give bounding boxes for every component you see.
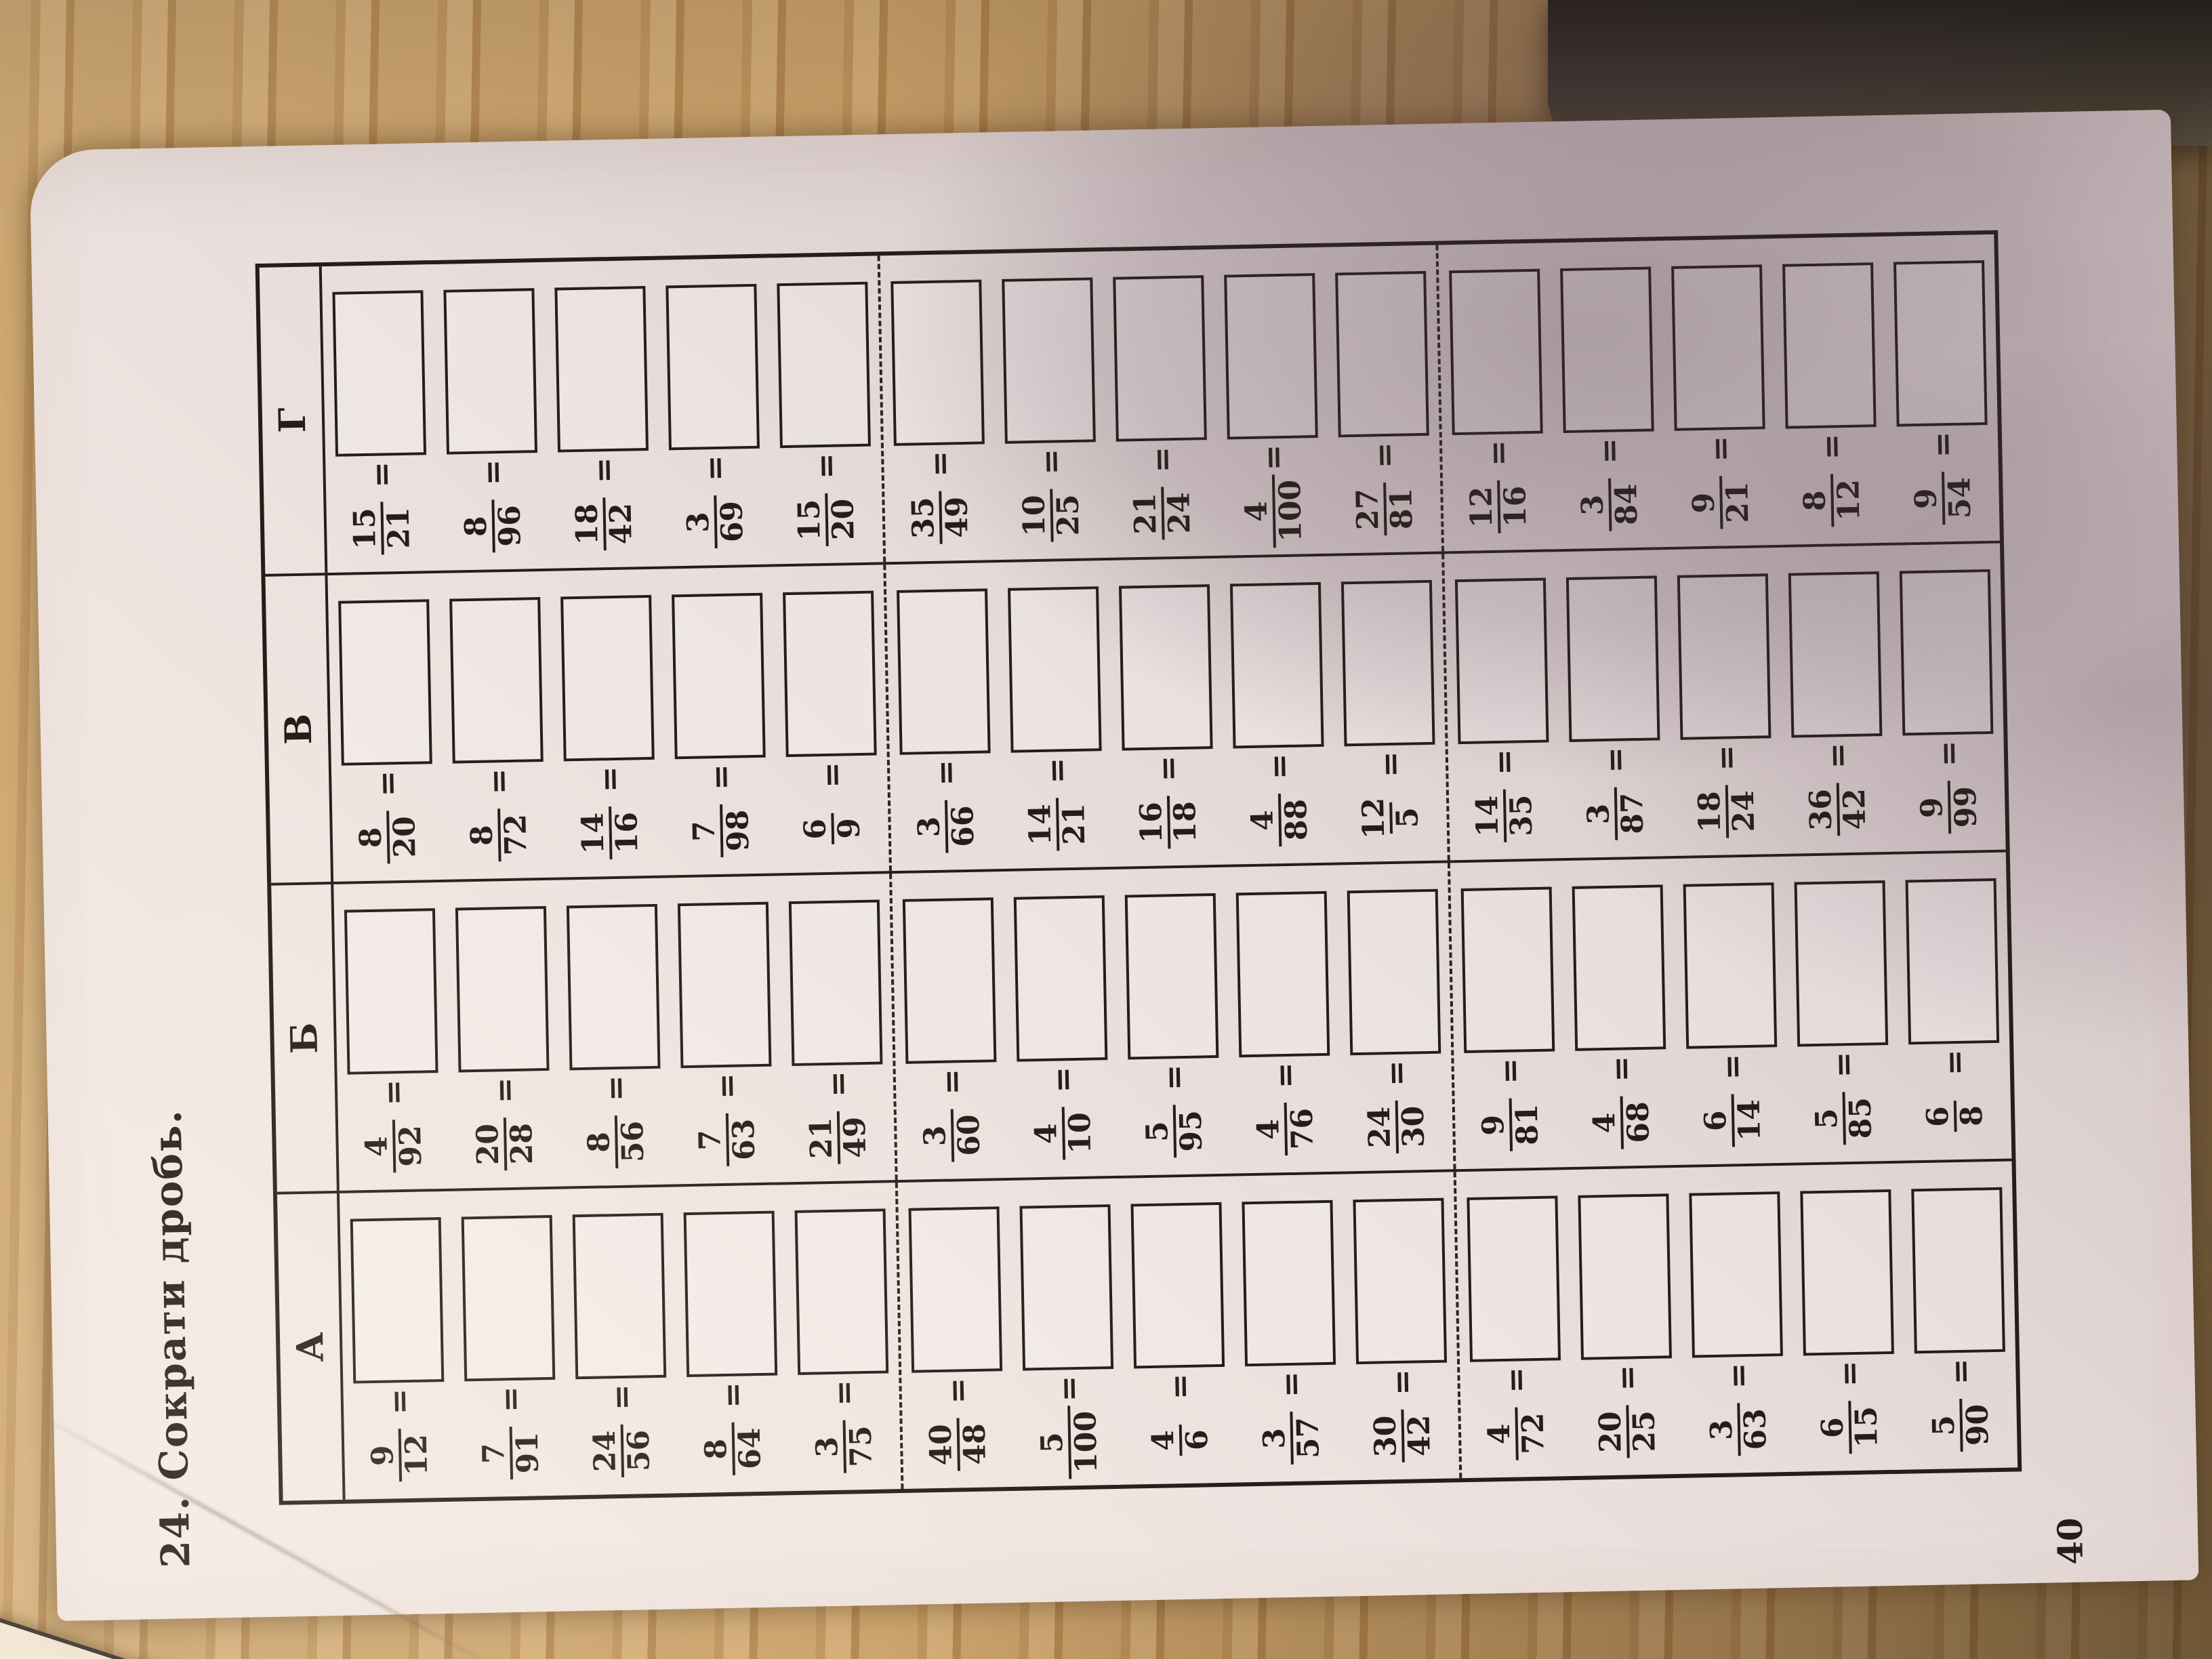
exercise-cell: 1216=: [1438, 243, 1555, 551]
fraction: 476: [1252, 1092, 1319, 1166]
fraction-numerator: 3: [914, 811, 945, 843]
equals-sign: =: [1366, 442, 1403, 469]
exercise-group: 3549=1025=2124=4100=2781=: [880, 245, 1445, 562]
fraction-denominator: 81: [1383, 483, 1418, 535]
exercise-cell: 4100=: [1213, 247, 1330, 556]
answer-box: [890, 279, 985, 446]
answer-box: [1224, 273, 1318, 440]
fraction-numerator: 16: [1136, 796, 1168, 849]
answer-box: [1461, 886, 1555, 1053]
fraction: 2149: [805, 1101, 872, 1175]
fraction-numerator: 6: [800, 813, 832, 846]
answer-box: [554, 286, 649, 453]
equals-sign: =: [1819, 742, 1856, 769]
fraction: 2456: [589, 1414, 655, 1488]
fraction: 864: [700, 1412, 766, 1486]
fraction-denominator: 48: [957, 1418, 992, 1471]
exercise-cell: 387=: [1555, 550, 1673, 858]
equals-sign: =: [1479, 440, 1517, 467]
answer-box: [1689, 1191, 1783, 1358]
equals-sign: =: [1050, 1375, 1087, 1402]
fraction-denominator: 16: [609, 806, 644, 859]
exercise-cell: 798=: [661, 567, 778, 875]
fraction-numerator: 20: [472, 1118, 505, 1171]
fraction-denominator: 56: [621, 1424, 656, 1477]
exercise-cell: 615=: [1790, 1164, 1907, 1472]
variant-column-Г: Г1521=896=1842=369=1520=3549=1025=2124=4…: [260, 234, 2000, 574]
fraction: 791: [478, 1416, 544, 1490]
exercise-group: 366=1421=1618=488=125=: [886, 554, 1450, 871]
exercise-cell: 357=: [1231, 1174, 1349, 1482]
equals-sign: =: [1935, 1049, 1973, 1076]
fraction-numerator: 9: [1910, 483, 1942, 515]
fraction-numerator: 9: [1917, 792, 1948, 824]
equals-sign: =: [1497, 1367, 1534, 1394]
fraction-denominator: 72: [1515, 1407, 1550, 1460]
equals-sign: =: [1372, 751, 1409, 778]
fraction-denominator: 92: [392, 1120, 428, 1172]
fraction: 3549: [907, 480, 974, 555]
fraction-denominator: 35: [1503, 789, 1538, 842]
equals-sign: =: [375, 1079, 412, 1106]
exercise-cell: 468=: [1561, 859, 1679, 1167]
exercise-cell: 896=: [433, 262, 550, 571]
fraction-numerator: 21: [806, 1111, 838, 1164]
exercise-cell: 2430=: [1336, 863, 1454, 1171]
fraction-numerator: 18: [1694, 785, 1727, 838]
exercise-cell: 872=: [438, 571, 556, 880]
exercise-cell: 363=: [1679, 1166, 1796, 1474]
fraction: 5100: [1036, 1405, 1103, 1479]
exercise-group: 981=468=614=585=68=: [1450, 853, 2012, 1170]
fraction-numerator: 4: [1241, 495, 1273, 528]
exercise-cell: 2149=: [778, 874, 895, 1182]
fraction-numerator: 5: [1142, 1115, 1174, 1148]
fraction-denominator: 20: [386, 811, 422, 863]
exercise-group: 360=410=595=476=2430=: [892, 863, 1456, 1180]
answer-box: [1125, 893, 1219, 1060]
fraction-numerator: 15: [349, 502, 382, 555]
exercise-cell: 3642=: [1778, 546, 1895, 854]
fraction-numerator: 7: [478, 1437, 510, 1470]
answer-box: [1467, 1195, 1561, 1362]
exercise-group: 1435=387=1824=3642=999=: [1444, 544, 2006, 861]
answer-box: [1335, 271, 1429, 438]
fraction: 1521: [349, 491, 415, 566]
equals-sign: =: [1044, 1066, 1082, 1093]
exercise-cell: 2025=: [1568, 1168, 1685, 1476]
answer-box: [1341, 580, 1435, 747]
exercise-cell: 2028=: [445, 880, 562, 1189]
exercise-cell: 3549=: [880, 253, 998, 562]
fraction-denominator: 63: [1737, 1403, 1772, 1456]
exercise-cell: 68=: [1895, 853, 2012, 1161]
exercise-cell: 2781=: [1324, 245, 1441, 554]
fraction: 387: [1582, 777, 1649, 851]
equals-sign: =: [486, 1077, 523, 1104]
fraction-denominator: 49: [837, 1111, 872, 1164]
fraction-denominator: 24: [1161, 487, 1196, 539]
fraction-denominator: 12: [1830, 474, 1866, 527]
answer-box: [777, 282, 871, 449]
fraction-denominator: 75: [843, 1420, 878, 1473]
fraction-denominator: 56: [615, 1115, 650, 1168]
fraction-denominator: 54: [1942, 472, 1977, 525]
fraction-numerator: 7: [689, 815, 720, 848]
equals-sign: =: [1143, 446, 1181, 473]
answer-box: [1119, 584, 1213, 751]
exercise-group: 4048=5100=46=357=3042=: [898, 1172, 1462, 1489]
photo-scene: з 24. Сократи дробь. А912=791=2456=864=3…: [0, 0, 2212, 1659]
equals-sign: =: [1155, 1064, 1193, 1091]
answer-box: [338, 599, 432, 766]
fraction: 2430: [1364, 1090, 1430, 1164]
exercise-cell: 1520=: [766, 255, 884, 564]
fraction: 488: [1246, 783, 1313, 857]
fraction-numerator: 3: [1583, 798, 1615, 830]
fraction-denominator: 15: [1848, 1401, 1883, 1454]
exercise-group: 472=2025=363=615=590=: [1456, 1162, 2018, 1479]
answer-box: [795, 1208, 889, 1375]
fraction-denominator: 6: [1179, 1424, 1214, 1456]
fraction-numerator: 5: [1037, 1427, 1069, 1459]
fraction: 1216: [1466, 470, 1532, 544]
fraction-denominator: 63: [726, 1113, 761, 1166]
answer-box: [1788, 571, 1883, 738]
exercise-cell: 1521=: [322, 264, 439, 573]
fraction-denominator: 21: [1056, 798, 1091, 851]
fraction-numerator: 5: [1928, 1410, 1960, 1442]
fraction-numerator: 36: [1805, 783, 1838, 836]
fraction: 369: [682, 485, 749, 559]
answer-box: [1677, 573, 1771, 740]
answer-box: [672, 593, 766, 760]
equals-sign: =: [1272, 1371, 1309, 1398]
variant-column-Б: Б492=2028=856=763=2149=360=410=595=476=2…: [271, 850, 2011, 1192]
equals-sign: =: [1713, 1053, 1750, 1080]
fraction-numerator: 9: [1478, 1109, 1510, 1141]
fraction: 472: [1483, 1397, 1550, 1471]
exercise-table: А912=791=2456=864=375=4048=5100=46=357=3…: [255, 230, 2022, 1505]
fraction-denominator: 20: [825, 493, 860, 546]
fraction: 410: [1030, 1096, 1097, 1170]
fraction-numerator: 14: [1472, 790, 1504, 842]
answer-box: [897, 588, 991, 755]
fraction-numerator: 3: [682, 506, 714, 539]
equals-sign: =: [1702, 436, 1739, 463]
equals-sign: =: [1491, 1058, 1528, 1085]
fraction-numerator: 24: [1364, 1101, 1396, 1153]
equals-sign: =: [480, 768, 517, 795]
fraction-denominator: 42: [1401, 1409, 1436, 1462]
fraction-numerator: 6: [1700, 1105, 1732, 1137]
answer-box: [1449, 269, 1543, 436]
equals-sign: =: [1942, 1358, 1979, 1385]
fraction: 2781: [1352, 472, 1418, 546]
equals-sign: =: [585, 457, 622, 484]
exercise-cell: 366=: [886, 562, 1003, 871]
exercise-cell: 46=: [1120, 1176, 1237, 1485]
answer-box: [1911, 1187, 2005, 1354]
equals-sign: =: [1377, 1060, 1414, 1087]
exercise-cell: 820=: [327, 573, 445, 882]
exercise-cell: 5100=: [1009, 1179, 1126, 1487]
fraction-denominator: 90: [1959, 1398, 1994, 1451]
fraction-denominator: 21: [1719, 476, 1755, 529]
fraction-numerator: 8: [583, 1126, 615, 1159]
exercise-title: 24. Сократи дробь.: [144, 1109, 199, 1568]
fraction: 3042: [1370, 1399, 1436, 1473]
answer-box: [462, 1215, 556, 1382]
fraction-numerator: 4: [1483, 1418, 1515, 1450]
fraction-numerator: 8: [466, 819, 498, 852]
equals-sign: =: [1924, 431, 1961, 458]
variant-column-А: А912=791=2456=864=375=4048=5100=46=357=3…: [277, 1159, 2018, 1501]
exercise-cell: 2124=: [1102, 249, 1219, 558]
fraction-denominator: 5: [1389, 802, 1424, 834]
answer-box: [449, 597, 544, 764]
fraction: 1435: [1471, 779, 1538, 853]
fraction-denominator: 68: [1620, 1096, 1656, 1149]
answer-box: [560, 595, 655, 762]
fraction-numerator: 9: [367, 1439, 399, 1472]
fraction-numerator: 8: [460, 510, 492, 543]
equals-sign: =: [602, 1384, 640, 1411]
answer-box: [909, 1206, 1003, 1373]
equals-sign: =: [702, 764, 739, 791]
fraction-denominator: 87: [1614, 787, 1650, 840]
answer-box: [567, 904, 661, 1071]
fraction: 585: [1811, 1081, 1877, 1155]
fraction: 615: [1817, 1390, 1883, 1465]
fraction-denominator: 25: [1626, 1405, 1661, 1458]
fraction-denominator: 69: [714, 495, 749, 548]
fraction: 125: [1357, 781, 1424, 855]
fraction-denominator: 72: [497, 808, 533, 861]
fraction-numerator: 14: [577, 807, 610, 860]
exercise-cell: 69=: [772, 565, 889, 873]
exercise-cell: 1618=: [1108, 558, 1225, 867]
equals-sign: =: [491, 1386, 529, 1413]
fraction-numerator: 6: [1817, 1412, 1849, 1444]
equals-sign: =: [1383, 1369, 1420, 1396]
exercise-cell: 2456=: [562, 1187, 679, 1495]
answer-box: [443, 288, 537, 455]
answer-box: [573, 1213, 667, 1380]
exercise-cell: 375=: [784, 1183, 901, 1491]
equals-sign: =: [813, 762, 851, 789]
fraction: 798: [689, 794, 755, 868]
fraction-numerator: 12: [1358, 792, 1391, 844]
fraction: 4100: [1241, 474, 1307, 548]
fraction: 856: [583, 1105, 649, 1179]
variant-header: Б: [271, 884, 340, 1192]
fraction-denominator: 21: [380, 501, 415, 554]
fraction-denominator: 84: [1608, 478, 1643, 531]
fraction-denominator: 16: [1497, 480, 1532, 533]
answer-box: [1906, 878, 2000, 1045]
fraction-denominator: 76: [1284, 1103, 1319, 1155]
exercise-group: 820=872=1416=798=69=: [327, 565, 892, 882]
equals-sign: =: [933, 1068, 970, 1095]
equals-sign: =: [1149, 755, 1187, 782]
exercise-cell: 812=: [1771, 237, 1889, 545]
equals-sign: =: [927, 760, 964, 787]
equals-sign: =: [1267, 1062, 1304, 1089]
equals-sign: =: [807, 453, 844, 480]
exercise-cell: 981=: [1450, 861, 1568, 1169]
fraction-numerator: 4: [361, 1130, 393, 1163]
equals-sign: =: [1254, 444, 1292, 471]
equals-sign: =: [819, 1071, 857, 1098]
exercise-group: 492=2028=856=763=2149=: [333, 874, 898, 1191]
answer-box: [678, 902, 772, 1069]
equals-sign: =: [1591, 438, 1628, 465]
fraction: 1824: [1694, 775, 1760, 849]
equals-sign: =: [1602, 1056, 1639, 1083]
answer-box: [783, 591, 877, 758]
fraction: 363: [1706, 1392, 1772, 1467]
fraction: 468: [1589, 1086, 1655, 1160]
fraction-denominator: 60: [951, 1109, 986, 1162]
exercise-cell: 1421=: [997, 560, 1114, 869]
fraction-denominator: 28: [504, 1118, 539, 1170]
exercise-cell: 585=: [1784, 855, 1901, 1163]
equals-sign: =: [696, 455, 733, 482]
equals-sign: =: [1719, 1362, 1757, 1389]
answer-box: [1671, 264, 1765, 431]
exercise-cell: 614=: [1673, 857, 1790, 1165]
exercise-cell: 472=: [1456, 1170, 1574, 1478]
fraction-numerator: 7: [695, 1124, 726, 1157]
equals-sign: =: [825, 1380, 862, 1407]
fraction-denominator: 18: [1167, 796, 1202, 848]
exercise-cell: 488=: [1219, 556, 1336, 865]
exercise-cell: 1435=: [1444, 552, 1561, 860]
fraction-denominator: 8: [1954, 1100, 1988, 1132]
exercise-group: 1216=384=921=812=954=: [1438, 234, 2000, 552]
fraction-denominator: 57: [1290, 1411, 1325, 1464]
fraction: 921: [1688, 466, 1755, 540]
fraction-denominator: 85: [1843, 1092, 1878, 1145]
exercise-cell: 476=: [1225, 865, 1343, 1174]
exercise-cell: 912=: [340, 1191, 457, 1500]
fraction-denominator: 66: [945, 800, 980, 853]
fraction-numerator: 8: [701, 1433, 733, 1466]
fraction-numerator: 12: [1466, 480, 1498, 533]
equals-sign: =: [1161, 1373, 1198, 1400]
fraction: 4048: [925, 1408, 991, 1482]
fraction: 1025: [1019, 478, 1085, 553]
exercise-cell: 1025=: [991, 251, 1109, 560]
exercise-cell: 1416=: [550, 569, 667, 878]
fraction-numerator: 9: [1688, 487, 1720, 519]
equals-sign: =: [1486, 749, 1523, 776]
exercise-group: 912=791=2456=864=375=: [340, 1183, 904, 1500]
fraction-denominator: 100: [1272, 474, 1307, 548]
exercise-cell: 856=: [556, 878, 673, 1187]
fraction: 360: [919, 1099, 985, 1173]
fraction-numerator: 35: [907, 491, 940, 544]
fraction-denominator: 42: [1837, 783, 1872, 836]
answer-box: [344, 908, 438, 1075]
answer-box: [1782, 262, 1877, 429]
equals-sign: =: [474, 459, 511, 486]
fraction: 46: [1147, 1403, 1214, 1477]
fraction-denominator: 88: [1278, 794, 1313, 846]
exercise-cell: 921=: [1660, 239, 1778, 547]
answer-box: [1795, 880, 1889, 1047]
fraction: 492: [361, 1109, 427, 1183]
answer-box: [903, 897, 997, 1064]
fraction: 999: [1916, 770, 1982, 844]
fraction-numerator: 4: [1247, 804, 1279, 837]
equals-sign: =: [921, 451, 958, 478]
fraction: 68: [1922, 1079, 1988, 1153]
fraction-numerator: 20: [1595, 1406, 1627, 1458]
fraction-numerator: 4: [1148, 1425, 1180, 1457]
answer-box: [1236, 891, 1330, 1058]
fraction: 2028: [472, 1107, 538, 1181]
page-number: 40: [2050, 1517, 2091, 1565]
variant-header: В: [265, 575, 333, 883]
fraction: 981: [1477, 1088, 1544, 1162]
fraction-denominator: 30: [1395, 1100, 1431, 1153]
equals-sign: =: [1038, 757, 1076, 784]
fraction-denominator: 24: [1725, 785, 1761, 838]
answer-box: [1900, 569, 1994, 736]
fraction: 812: [1799, 464, 1866, 538]
exercise-cell: 369=: [655, 258, 773, 567]
fraction-denominator: 91: [510, 1427, 545, 1479]
fraction-numerator: 15: [794, 493, 826, 546]
equals-sign: =: [939, 1377, 976, 1404]
fraction-denominator: 96: [491, 499, 527, 552]
answer-box: [1113, 275, 1207, 442]
answer-box: [332, 290, 426, 457]
fraction-denominator: 14: [1732, 1094, 1767, 1147]
fraction-denominator: 12: [398, 1429, 434, 1481]
fraction: 2025: [1595, 1395, 1661, 1469]
fraction: 872: [466, 798, 533, 872]
fraction: 357: [1258, 1401, 1325, 1475]
fraction-denominator: 98: [720, 804, 755, 857]
answer-box: [684, 1211, 778, 1378]
fraction-denominator: 42: [602, 497, 638, 550]
answer-box: [1683, 882, 1778, 1049]
fraction-numerator: 4: [1253, 1113, 1285, 1146]
fraction: 1416: [577, 796, 644, 870]
exercise-cell: 125=: [1330, 554, 1448, 863]
answer-box: [1014, 895, 1108, 1062]
fraction: 1842: [571, 487, 638, 561]
equals-sign: =: [1032, 448, 1069, 475]
fraction-denominator: 10: [1062, 1107, 1097, 1160]
fraction-denominator: 100: [1067, 1405, 1103, 1479]
exercise-cell: 3042=: [1343, 1172, 1460, 1480]
answer-box: [1560, 266, 1654, 433]
exercise-cell: 999=: [1889, 544, 2006, 852]
equals-sign: =: [1608, 1364, 1645, 1391]
equals-sign: =: [381, 1388, 418, 1415]
fraction-denominator: 95: [1173, 1105, 1208, 1158]
fraction: 954: [1910, 461, 1976, 535]
fraction-numerator: 18: [571, 498, 604, 551]
fraction-numerator: 4: [1589, 1107, 1621, 1139]
exercise-cell: 864=: [673, 1185, 790, 1493]
exercise-cell: 4048=: [898, 1181, 1015, 1489]
exercise-cell: 1824=: [1666, 548, 1784, 856]
